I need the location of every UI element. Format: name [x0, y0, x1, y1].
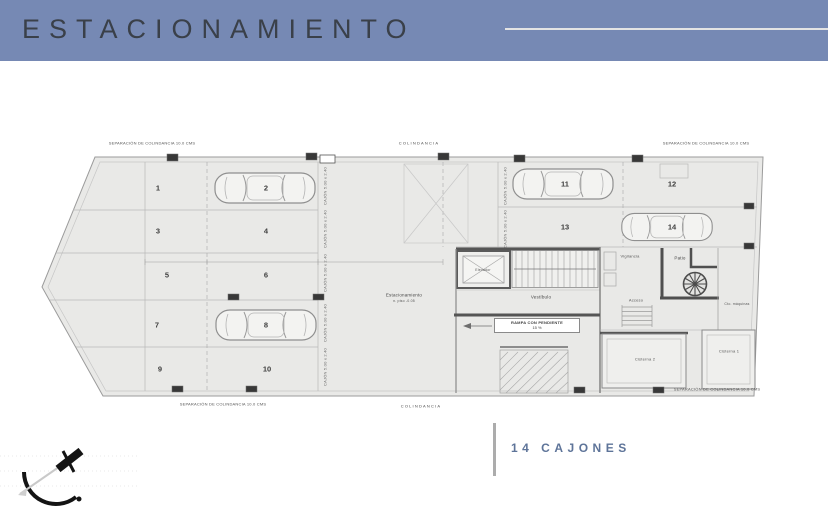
ramp-slope-label: 15 %	[532, 326, 541, 331]
stall-dimension-label: CAJÓN 5.00 x 2.40	[323, 348, 328, 386]
tree-icon	[683, 272, 707, 296]
stall-dimension-label: CAJÓN 5.00 x 2.40	[503, 167, 508, 205]
parking-space-11: 11	[561, 180, 569, 189]
parking-space-2: 2	[264, 184, 268, 193]
boundary-label-bottom-right: SEPARACIÓN DE COLINDANCIA 10.0 CMS	[674, 387, 761, 392]
parking-space-9: 9	[158, 365, 162, 374]
ramp-label-box: RAMPA CON PENDIENTE 15 %	[494, 318, 580, 333]
parking-plan-page: ESTACIONAMIENTO	[0, 0, 828, 508]
lobby-label: Vestíbulo	[531, 295, 551, 300]
parking-space-4: 4	[264, 227, 268, 236]
boundary-label-top-center: COLINDANCIA	[399, 141, 440, 146]
parking-level-label: n. piso -0.05	[393, 299, 415, 303]
stall-dimension-label: CAJÓN 5.00 x 2.40	[323, 254, 328, 292]
stall-dimension-label: CAJÓN 5.00 x 2.40	[503, 210, 508, 248]
parking-space-10: 10	[263, 365, 271, 374]
cistern-2-label: Cisterna 2	[635, 357, 655, 362]
capacity-divider-bar	[493, 423, 496, 476]
north-arrow-icon	[0, 451, 140, 504]
stall-dimension-label: CAJÓN 5.00 x 2.40	[323, 210, 328, 248]
access-label: Acceso	[629, 298, 643, 303]
parking-space-8: 8	[264, 321, 268, 330]
stall-dimension-label: CAJÓN 5.00 x 2.40	[323, 304, 328, 342]
parking-space-3: 3	[156, 227, 160, 236]
parking-space-6: 6	[264, 271, 268, 280]
gate-marker	[320, 155, 335, 163]
parking-space-12: 12	[668, 180, 676, 189]
boundary-label-bottom-center: COLINDANCIA	[401, 404, 442, 409]
parking-space-1: 1	[156, 184, 160, 193]
parking-space-5: 5	[165, 271, 169, 280]
security-room-label: Vigilancia	[620, 254, 639, 259]
cistern-1-label: Cisterna 1	[719, 349, 739, 354]
stall-dimension-label: CAJÓN 5.00 x 2.40	[323, 167, 328, 205]
machine-room-label: Cto. máquinas	[724, 302, 749, 306]
patio-label: Patio	[674, 256, 685, 261]
boundary-label-bottom-left: SEPARACIÓN DE COLINDANCIA 10.0 CMS	[180, 402, 267, 407]
elevator-label: Elevador	[475, 268, 490, 272]
parking-area-label: Estacionamiento	[386, 293, 422, 298]
parking-space-14: 14	[668, 223, 676, 232]
capacity-label: 14 CAJONES	[511, 441, 631, 455]
boundary-label-top-right: SEPARACIÓN DE COLINDANCIA 10.0 CMS	[663, 141, 750, 146]
parking-space-13: 13	[561, 223, 569, 232]
parking-space-7: 7	[155, 321, 159, 330]
boundary-label-top-left: SEPARACIÓN DE COLINDANCIA 10.0 CMS	[109, 141, 196, 146]
floor-plan-drawing	[0, 0, 828, 508]
